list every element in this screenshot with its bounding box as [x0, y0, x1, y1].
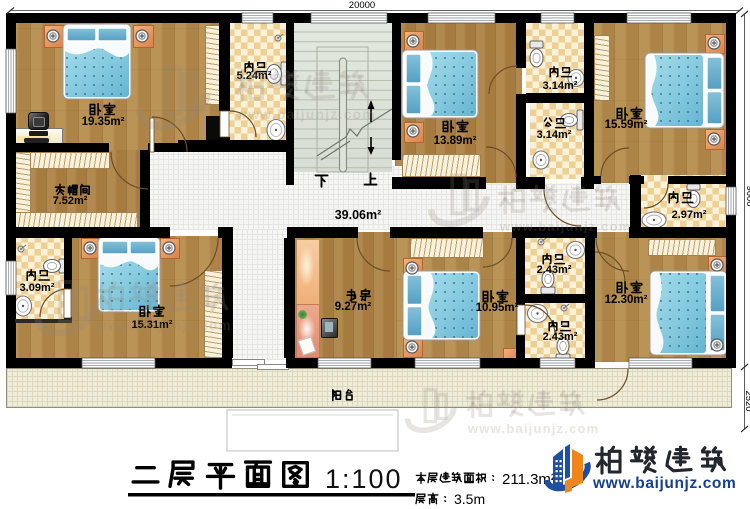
svg-text:2.43m²: 2.43m²	[537, 264, 572, 276]
svg-text:3.14m²: 3.14m²	[537, 129, 572, 141]
svg-text:19.35m²: 19.35m²	[82, 116, 125, 128]
svg-text:2.97m²: 2.97m²	[672, 209, 707, 221]
svg-text:3.09m²: 3.09m²	[20, 282, 55, 294]
svg-text:www.baijunjz.com: www.baijunjz.com	[499, 219, 631, 234]
svg-text:3.14m²: 3.14m²	[543, 80, 578, 92]
svg-text:10.95m²: 10.95m²	[476, 302, 519, 314]
svg-text:7.52m²: 7.52m²	[53, 195, 88, 207]
svg-text:www.baijunjz.com: www.baijunjz.com	[592, 475, 736, 492]
svg-text:15.59m²: 15.59m²	[605, 119, 648, 131]
svg-text:9600: 9600	[744, 185, 750, 206]
svg-text:2.43m²: 2.43m²	[543, 331, 578, 343]
svg-text:20000: 20000	[349, 0, 375, 11]
svg-text:39.06m²: 39.06m²	[335, 208, 382, 222]
svg-text:3.5m: 3.5m	[454, 491, 485, 507]
svg-text:12.30m²: 12.30m²	[605, 294, 648, 306]
svg-text:2520: 2520	[743, 390, 750, 411]
svg-text:1:100: 1:100	[325, 464, 403, 494]
svg-text:9.27m²: 9.27m²	[335, 301, 372, 313]
svg-text:www.baijunjz.com: www.baijunjz.com	[95, 318, 232, 333]
svg-text:www.baijunjz.com: www.baijunjz.com	[467, 421, 599, 436]
svg-text:13.89m²: 13.89m²	[434, 135, 477, 147]
svg-text:www.baijunjz.com: www.baijunjz.com	[235, 106, 376, 122]
